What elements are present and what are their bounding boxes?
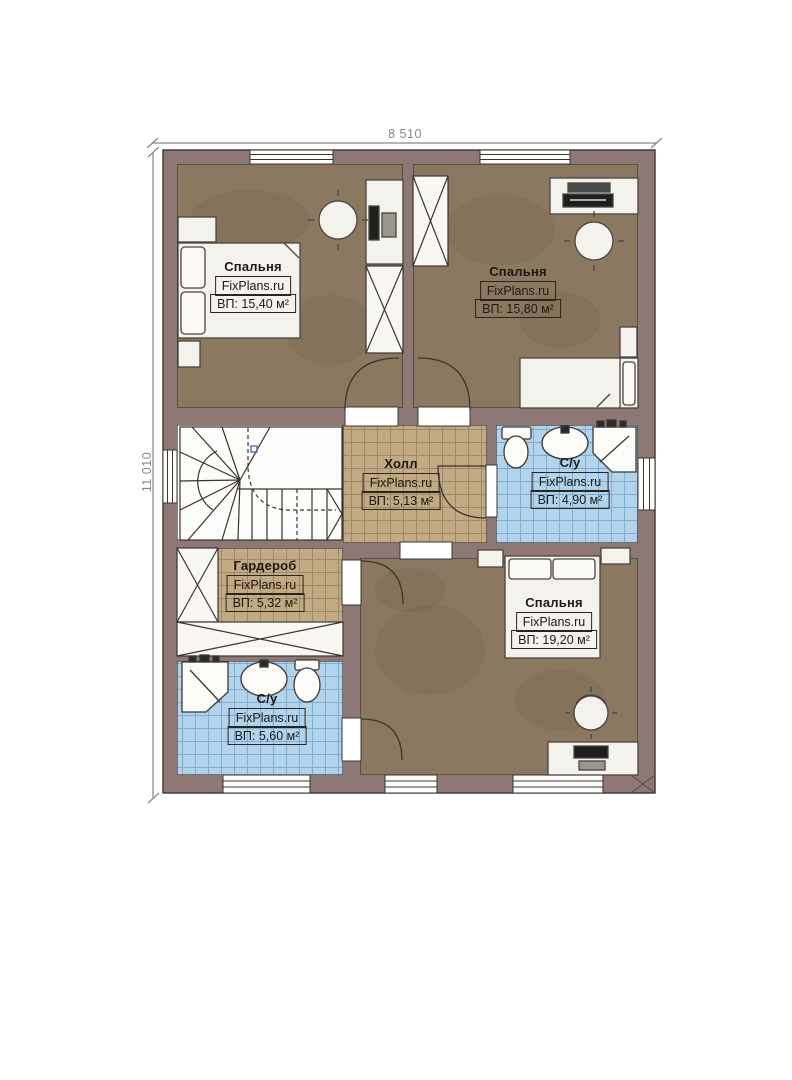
brand-watermark: FixPlans.ru bbox=[229, 708, 306, 728]
wall-stairs-wardrobe bbox=[177, 540, 343, 548]
room-name: Холл bbox=[384, 457, 417, 470]
room-label-bathroom-top: С/у FixPlans.ru ВП: 4,90 м² bbox=[531, 456, 610, 509]
desk-icon bbox=[548, 742, 638, 775]
bed-icon bbox=[520, 358, 638, 408]
nightstand-icon bbox=[178, 341, 200, 367]
room-area: ВП: 5,32 м² bbox=[226, 593, 305, 613]
closet-wardrobe-left bbox=[177, 548, 218, 622]
door-opening-bedroom-tl bbox=[345, 407, 398, 426]
dimension-width-label: 8 510 bbox=[388, 127, 422, 141]
nightstand-icon bbox=[601, 548, 630, 564]
window-top-1 bbox=[250, 150, 333, 164]
closet-bedroom-tr bbox=[413, 176, 448, 266]
window-right-bathroom bbox=[638, 458, 655, 510]
brand-watermark: FixPlans.ru bbox=[480, 281, 557, 301]
dresser-icon bbox=[178, 217, 216, 242]
room-name: Гардероб bbox=[233, 559, 296, 572]
floor-plan-page: 8 510 11 010 Спальня FixPlans.ru ВП: 15,… bbox=[0, 0, 792, 1080]
closet-bedroom-tl bbox=[366, 266, 403, 353]
floor-plan-drawing bbox=[0, 0, 792, 1080]
brand-watermark: FixPlans.ru bbox=[363, 473, 440, 493]
staircase bbox=[180, 427, 342, 540]
nightstand-icon bbox=[478, 550, 503, 567]
room-area: ВП: 5,13 м² bbox=[362, 491, 441, 511]
brand-watermark: FixPlans.ru bbox=[532, 472, 609, 492]
room-name: Спальня bbox=[525, 596, 583, 609]
window-bottom-2 bbox=[385, 775, 437, 793]
window-top-2 bbox=[480, 150, 570, 164]
closet-wardrobe-bottom bbox=[177, 622, 343, 656]
passage-hall-bedroom bbox=[400, 542, 452, 559]
room-area: ВП: 19,20 м² bbox=[511, 630, 597, 650]
window-left-stairs bbox=[163, 450, 177, 503]
door-opening-bedroom-tr bbox=[418, 407, 470, 426]
room-label-hall: Холл FixPlans.ru ВП: 5,13 м² bbox=[362, 457, 441, 510]
room-area: ВП: 15,40 м² bbox=[210, 294, 296, 314]
window-bottom-1 bbox=[223, 775, 310, 793]
room-label-bedroom-bottom-right: Спальня FixPlans.ru ВП: 19,20 м² bbox=[511, 596, 597, 649]
dimension-height-label: 11 010 bbox=[140, 452, 154, 492]
brand-watermark: FixPlans.ru bbox=[227, 575, 304, 595]
wall-exterior-top bbox=[163, 150, 655, 164]
door-opening-bathroom-top bbox=[486, 465, 497, 517]
desk-icon bbox=[550, 178, 638, 214]
room-area: ВП: 5,60 м² bbox=[228, 726, 307, 746]
room-label-bathroom-bottom: С/у FixPlans.ru ВП: 5,60 м² bbox=[228, 692, 307, 745]
door-opening-bathroom-bottom bbox=[342, 718, 361, 761]
room-name: С/у bbox=[560, 456, 581, 469]
window-bottom-3 bbox=[513, 775, 603, 793]
door-opening-wardrobe bbox=[342, 560, 361, 605]
room-name: Спальня bbox=[489, 265, 547, 278]
room-name: Спальня bbox=[224, 260, 282, 273]
room-label-bedroom-top-right: Спальня FixPlans.ru ВП: 15,80 м² bbox=[475, 265, 561, 318]
brand-watermark: FixPlans.ru bbox=[215, 276, 292, 296]
brand-watermark: FixPlans.ru bbox=[516, 612, 593, 632]
wall-middle-horizontal bbox=[177, 408, 638, 425]
desk-icon bbox=[366, 180, 403, 264]
nightstand-icon bbox=[620, 327, 637, 357]
room-name: С/у bbox=[257, 692, 278, 705]
wall-between-top-bedrooms bbox=[403, 164, 413, 408]
room-area: ВП: 15,80 м² bbox=[475, 299, 561, 319]
room-label-wardrobe: Гардероб FixPlans.ru ВП: 5,32 м² bbox=[226, 559, 305, 612]
room-label-bedroom-top-left: Спальня FixPlans.ru ВП: 15,40 м² bbox=[210, 260, 296, 313]
room-area: ВП: 4,90 м² bbox=[531, 490, 610, 510]
